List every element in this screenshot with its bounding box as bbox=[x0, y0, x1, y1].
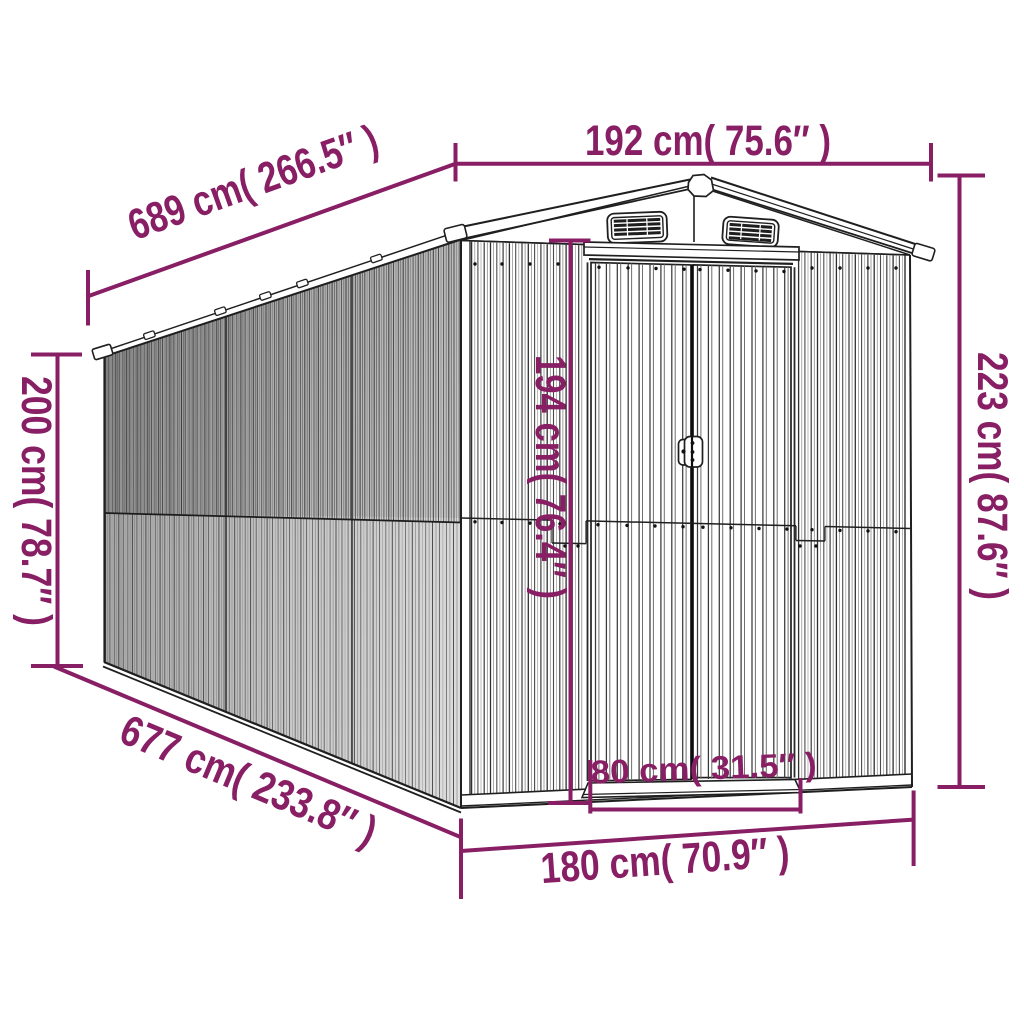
svg-text:192 cm( 75.6″ ): 192 cm( 75.6″ ) bbox=[585, 117, 831, 165]
svg-text:194 cm( 76.4″ ): 194 cm( 76.4″ ) bbox=[526, 355, 574, 599]
svg-text:200 cm( 78.7″ ): 200 cm( 78.7″ ) bbox=[12, 376, 60, 626]
svg-text:223 cm( 87.6″ ): 223 cm( 87.6″ ) bbox=[968, 352, 1016, 600]
